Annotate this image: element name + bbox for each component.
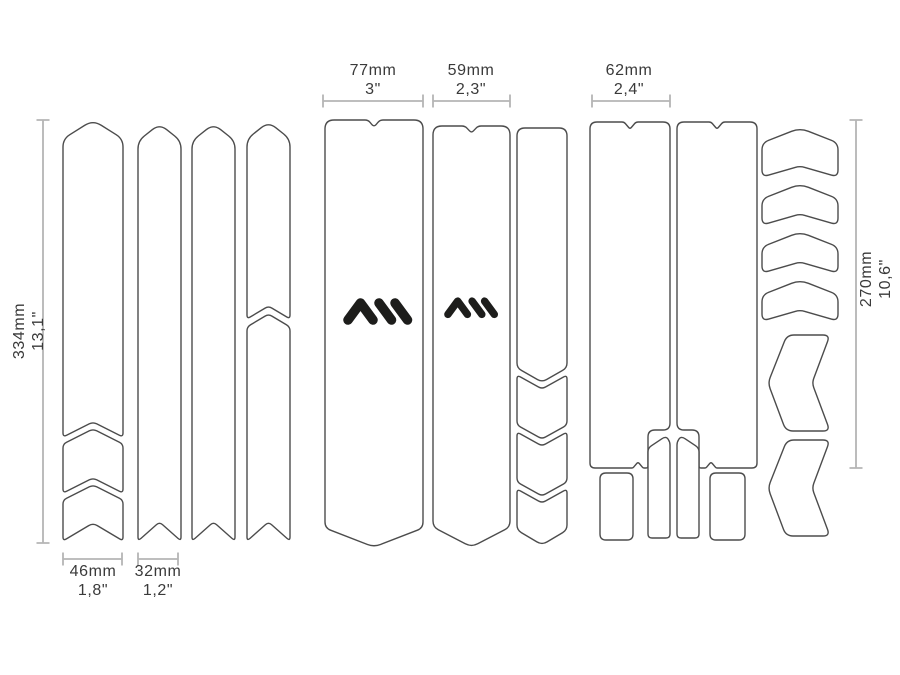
patch-left [600,473,633,540]
dim-inch: 3" [350,81,397,100]
dim-mm: 62mm [606,62,653,81]
chevron-piece-4 [762,282,838,320]
arrow-piece-2 [769,440,828,536]
strip-46mm-chevron-1 [63,430,123,492]
dim-label-59mm: 59mm 2,3" [448,62,495,100]
dim-mm: 270mm [858,251,877,307]
dim-mm: 32mm [135,563,182,582]
chevron-strip-seg-3 [517,433,567,495]
toptube-guard-left-62mm [590,122,670,468]
strip-32mm-a [138,127,181,540]
dim-label-77mm: 77mm 3" [350,62,397,100]
arrow-piece-1 [769,335,828,431]
chevron-piece-1 [762,130,838,176]
dim-label-46mm: 46mm 1,8" [70,563,117,601]
sticker-shapes [63,120,838,546]
chevron-strip-seg-2 [517,376,567,438]
dim-inch: 1,2" [135,582,182,601]
strip-32mm-c-upper [247,125,290,318]
dim-inch: 2,3" [448,81,495,100]
downtube-guard-59mm [433,126,510,545]
toptube-guard-right-62mm [677,122,757,468]
downtube-guard-77mm [325,120,423,546]
dim-mm: 46mm [70,563,117,582]
chevron-piece-2 [762,186,838,224]
dim-mm: 59mm [448,62,495,81]
strip-46mm-main [63,123,123,436]
dim-label-32mm: 32mm 1,2" [135,563,182,601]
dim-label-270mm: 270mm 10,6" [858,251,896,307]
patch-right [710,473,745,540]
chevron-strip-seg-4 [517,490,567,543]
dim-inch: 13,1" [30,303,49,359]
dim-inch: 2,4" [606,81,653,100]
dim-inch: 10,6" [877,251,896,307]
strip-32mm-c-lower [247,315,290,539]
strip-32mm-b [192,127,235,540]
dim-mm: 334mm [11,303,30,359]
chevron-piece-3 [762,234,838,272]
dim-mm: 77mm [350,62,397,81]
chevron-strip-top [517,128,567,381]
dim-inch: 1,8" [70,582,117,601]
dim-label-334mm: 334mm 13,1" [11,303,49,359]
dim-label-62mm: 62mm 2,4" [606,62,653,100]
template-diagram: 77mm 3" 59mm 2,3" 62mm 2,4" 46mm 1,8" 32… [0,0,900,675]
stay-strip-left [648,437,670,538]
stay-strip-right [677,437,699,538]
strip-46mm-chevron-2 [63,486,123,540]
